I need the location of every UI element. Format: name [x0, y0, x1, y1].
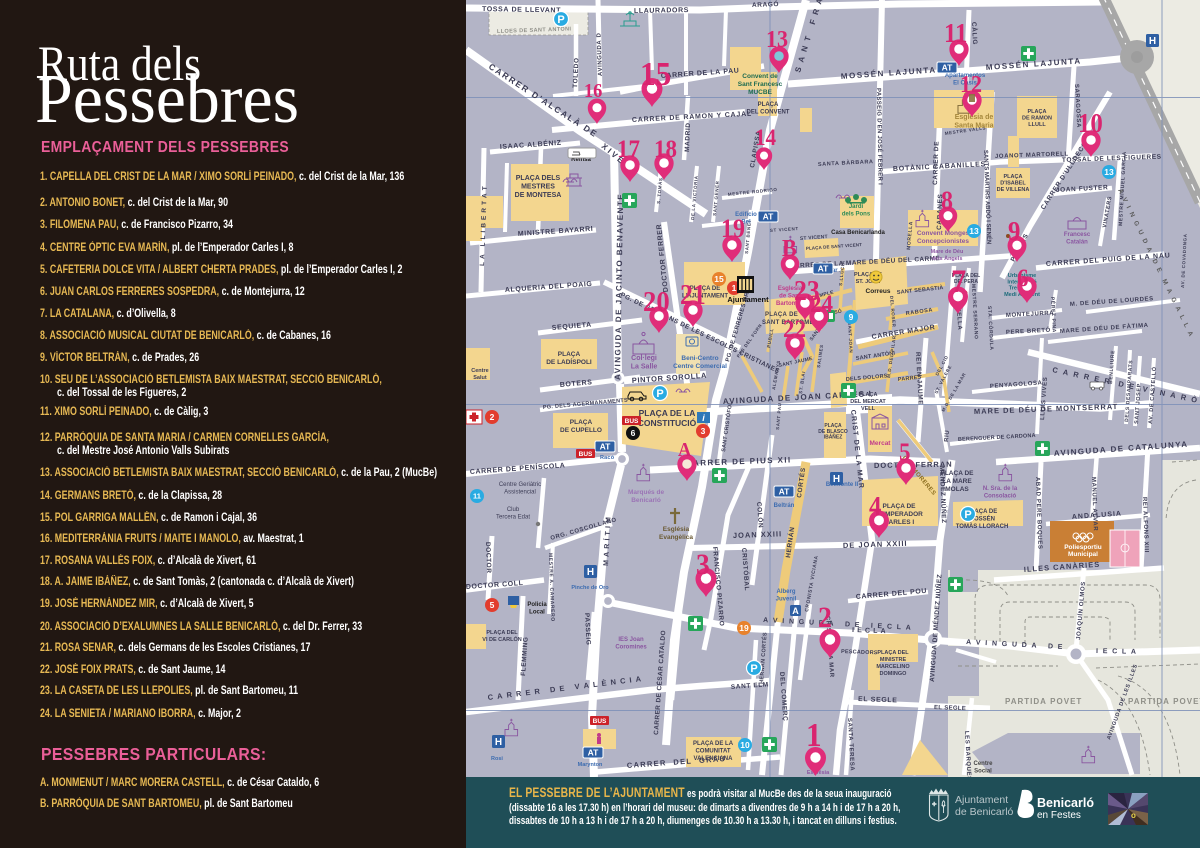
svg-text:BUS: BUS — [625, 418, 639, 425]
svg-text:20: 20 — [643, 286, 670, 318]
svg-text:Racó: Racó — [600, 455, 615, 461]
svg-text:10: 10 — [1078, 108, 1103, 138]
svg-text:PLAÇA DE LA: PLAÇA DE LA — [639, 408, 696, 418]
svg-text:Mercat: Mercat — [870, 440, 892, 447]
svg-text:P: P — [750, 663, 757, 675]
svg-text:Centre Geriàtric: Centre Geriàtric — [499, 482, 541, 488]
svg-text:14: 14 — [755, 124, 776, 150]
svg-text:H: H — [495, 737, 502, 748]
svg-text:EL SEGLE: EL SEGLE — [934, 705, 966, 712]
svg-text:Jardí: Jardí — [849, 204, 864, 210]
svg-text:24: 24 — [810, 291, 833, 318]
svg-text:PLAÇA DE: PLAÇA DE — [941, 470, 975, 477]
svg-text:Municipal: Municipal — [1068, 551, 1098, 558]
svg-text:Catalán: Catalán — [1066, 240, 1088, 246]
svg-text:17: 17 — [617, 136, 640, 163]
svg-text:MARCELINO: MARCELINO — [876, 664, 910, 670]
svg-text:Marqués de: Marqués de — [628, 489, 665, 496]
svg-text:Col·legi: Col·legi — [631, 355, 657, 362]
svg-text:5: 5 — [490, 600, 495, 610]
svg-text:P: P — [557, 14, 564, 26]
svg-text:DOMINGO: DOMINGO — [880, 671, 908, 677]
svg-text:PLAÇA: PLAÇA — [570, 419, 593, 426]
svg-text:BUS: BUS — [593, 718, 607, 725]
svg-text:4: 4 — [869, 491, 881, 521]
svg-text:Centre: Centre — [471, 368, 488, 374]
svg-text:16: 16 — [584, 80, 603, 102]
svg-text:P: P — [964, 509, 971, 521]
svg-text:A: A — [792, 606, 799, 616]
svg-text:PLAÇA: PLAÇA — [1028, 109, 1047, 115]
svg-text:Ajuntament: Ajuntament — [955, 794, 1008, 806]
svg-text:JOAN XXIII: JOAN XXIII — [733, 529, 782, 540]
svg-text:3: 3 — [696, 548, 710, 581]
svg-text:Evangèlica: Evangèlica — [659, 534, 693, 541]
svg-text:DE RAMON: DE RAMON — [1022, 116, 1052, 122]
svg-text:H: H — [1149, 36, 1156, 47]
svg-text:Centre: Centre — [973, 761, 993, 767]
svg-text:1: 1 — [732, 283, 737, 293]
svg-text:Francesc: Francesc — [1064, 232, 1091, 238]
svg-text:LA MARE: LA MARE — [942, 478, 972, 485]
svg-text:Mare de Déu: Mare de Déu — [931, 249, 964, 255]
svg-text:Tercera Edat: Tercera Edat — [496, 515, 530, 521]
svg-text:I E C L A: I E C L A — [1096, 648, 1138, 656]
svg-text:PLAÇA: PLAÇA — [859, 392, 878, 398]
svg-text:Beni-Centro: Beni-Centro — [681, 355, 718, 362]
svg-text:LLULL: LLULL — [1028, 122, 1046, 128]
svg-text:6: 6 — [631, 428, 636, 438]
svg-text:Beltrán: Beltrán — [774, 503, 795, 509]
svg-text:MINISTRE: MINISTRE — [880, 657, 907, 663]
svg-text:Club: Club — [507, 507, 520, 513]
svg-text:13: 13 — [766, 25, 788, 52]
svg-text:N. Sra. de la: N. Sra. de la — [983, 486, 1018, 492]
svg-text:9: 9 — [849, 312, 854, 322]
svg-text:o: o — [1131, 811, 1136, 820]
svg-text:18: 18 — [654, 136, 677, 163]
svg-text:Local: Local — [529, 610, 545, 616]
svg-text:9: 9 — [1008, 216, 1020, 246]
svg-text:Convent Monges: Convent Monges — [917, 230, 970, 237]
svg-text:AT: AT — [763, 212, 775, 222]
svg-text:EL SEGLE: EL SEGLE — [858, 696, 898, 704]
svg-text:PLAÇA DE: PLAÇA DE — [883, 503, 917, 510]
svg-text:8: 8 — [941, 187, 953, 215]
svg-text:PLAÇA DEL: PLAÇA DEL — [877, 650, 909, 656]
svg-text:PLAÇA DEL: PLAÇA DEL — [486, 630, 518, 636]
svg-text:Policia: Policia — [527, 602, 547, 608]
svg-text:15: 15 — [714, 274, 724, 284]
svg-text:Pinche de Oro: Pinche de Oro — [571, 585, 609, 591]
svg-text:DEL CONVENT: DEL CONVENT — [747, 110, 790, 116]
svg-text:AT: AT — [818, 264, 830, 274]
svg-text:22: 22 — [783, 316, 806, 343]
svg-text:Consolació: Consolació — [984, 494, 1017, 500]
svg-text:dels Pons: dels Pons — [842, 212, 871, 218]
svg-text:Assistencial: Assistencial — [504, 490, 536, 496]
svg-text:DE MONTESA: DE MONTESA — [515, 192, 562, 199]
svg-text:DE VILLENA: DE VILLENA — [997, 187, 1030, 193]
svg-text:AT: AT — [600, 442, 612, 452]
svg-text:PLAÇA: PLAÇA — [758, 102, 779, 108]
svg-text:PLAÇA DE LA: PLAÇA DE LA — [693, 741, 734, 747]
svg-text:La Salle: La Salle — [631, 364, 658, 371]
svg-text:VELL: VELL — [861, 406, 876, 412]
svg-text:19: 19 — [739, 623, 749, 633]
svg-text:19: 19 — [721, 215, 745, 243]
svg-text:DEL MERCAT: DEL MERCAT — [850, 399, 886, 405]
svg-text:H: H — [833, 474, 840, 485]
svg-text:DE LADÍSPOLI: DE LADÍSPOLI — [546, 357, 592, 366]
svg-text:PLAÇA DELS: PLAÇA DELS — [516, 175, 561, 182]
svg-text:VI DE CARLÓN: VI DE CARLÓN — [482, 635, 521, 643]
svg-text:Juvenil: Juvenil — [776, 597, 797, 603]
svg-text:LLAURADORS: LLAURADORS — [634, 7, 689, 15]
svg-text:Poliesportiu: Poliesportiu — [1064, 544, 1102, 551]
svg-text:PARTIDA POVET: PARTIDA POVET — [1005, 697, 1082, 706]
svg-text:Correus: Correus — [866, 288, 891, 295]
svg-text:2: 2 — [490, 412, 495, 422]
svg-text:Esglesia de: Esglesia de — [955, 114, 994, 121]
svg-text:Concepcionistes: Concepcionistes — [917, 238, 969, 245]
svg-text:Marynton: Marynton — [578, 762, 603, 768]
svg-text:PLAÇA: PLAÇA — [558, 351, 581, 358]
svg-text:D'ISABEL: D'ISABEL — [1000, 181, 1026, 187]
svg-text:AT: AT — [942, 63, 954, 73]
svg-text:dels Àngels: dels Àngels — [932, 255, 963, 262]
svg-text:Església: Església — [663, 526, 690, 533]
svg-text:PLAÇA: PLAÇA — [1004, 174, 1023, 180]
svg-text:Casa Benicarlanda: Casa Benicarlanda — [831, 230, 885, 236]
svg-text:MESTRES: MESTRES — [521, 184, 555, 191]
svg-text:TOMÀS LLORACH: TOMÀS LLORACH — [956, 523, 1009, 530]
svg-text:11: 11 — [944, 18, 967, 48]
svg-text:2: 2 — [818, 601, 832, 634]
svg-text:RIU: RIU — [944, 430, 951, 443]
svg-text:7: 7 — [951, 263, 966, 299]
svg-text:11: 11 — [473, 492, 481, 501]
svg-text:Rosi: Rosi — [491, 756, 503, 762]
svg-text:IBÁÑEZ: IBÁÑEZ — [824, 434, 843, 441]
svg-text:Coromines: Coromines — [615, 645, 647, 651]
svg-text:TOSSA DE LLEVANT: TOSSA DE LLEVANT — [482, 6, 561, 14]
svg-text:P: P — [656, 388, 663, 400]
svg-text:1: 1 — [806, 717, 822, 754]
svg-text:5: 5 — [899, 439, 911, 466]
svg-text:VALENCIANA: VALENCIANA — [694, 756, 734, 762]
svg-text:Convent de: Convent de — [742, 73, 778, 80]
svg-text:IES Joan: IES Joan — [618, 637, 644, 643]
svg-text:15: 15 — [640, 56, 671, 93]
svg-text:6: 6 — [1017, 265, 1029, 292]
svg-text:Santa Maria: Santa Maria — [954, 123, 993, 130]
svg-text:A: A — [678, 439, 691, 461]
svg-text:CONSTITUCIÓ: CONSTITUCIÓ — [638, 417, 697, 428]
svg-text:B: B — [782, 234, 797, 261]
svg-text:MOLAS: MOLAS — [945, 486, 969, 493]
svg-text:MUCBE: MUCBE — [748, 89, 772, 96]
svg-text:H: H — [587, 567, 594, 578]
svg-text:ARAGÓ: ARAGÓ — [752, 0, 780, 9]
svg-text:Benicarló: Benicarló — [1037, 796, 1094, 810]
svg-text:Ajuntament: Ajuntament — [727, 295, 769, 304]
svg-text:COMUNITAT: COMUNITAT — [695, 749, 730, 755]
svg-text:Benicarló: Benicarló — [631, 497, 661, 504]
svg-text:13: 13 — [1104, 167, 1114, 177]
svg-text:12: 12 — [960, 70, 982, 97]
svg-text:13: 13 — [969, 226, 979, 236]
svg-text:21: 21 — [680, 279, 706, 310]
svg-text:PESCADORS: PESCADORS — [841, 649, 878, 656]
svg-text:AT: AT — [588, 748, 600, 758]
svg-text:Salut: Salut — [473, 375, 487, 381]
svg-text:PARTIDA POVET: PARTIDA POVET — [1128, 697, 1200, 706]
svg-text:Alberg: Alberg — [776, 589, 795, 595]
svg-text:DOCTOR: DOCTOR — [484, 542, 492, 574]
svg-text:de Benicarló: de Benicarló — [955, 806, 1014, 818]
svg-text:en Festes: en Festes — [1037, 810, 1081, 821]
svg-text:Social: Social — [974, 769, 992, 775]
svg-text:AT: AT — [779, 487, 791, 497]
svg-text:BUS: BUS — [579, 451, 593, 458]
svg-text:Sant Francesc: Sant Francesc — [738, 81, 783, 88]
svg-text:DE CUPELLO: DE CUPELLO — [560, 427, 602, 434]
svg-text:Centre Comercial: Centre Comercial — [673, 363, 727, 370]
svg-text:3: 3 — [701, 426, 706, 436]
svg-text:MADRID: MADRID — [684, 122, 692, 152]
svg-text:10: 10 — [740, 740, 750, 750]
